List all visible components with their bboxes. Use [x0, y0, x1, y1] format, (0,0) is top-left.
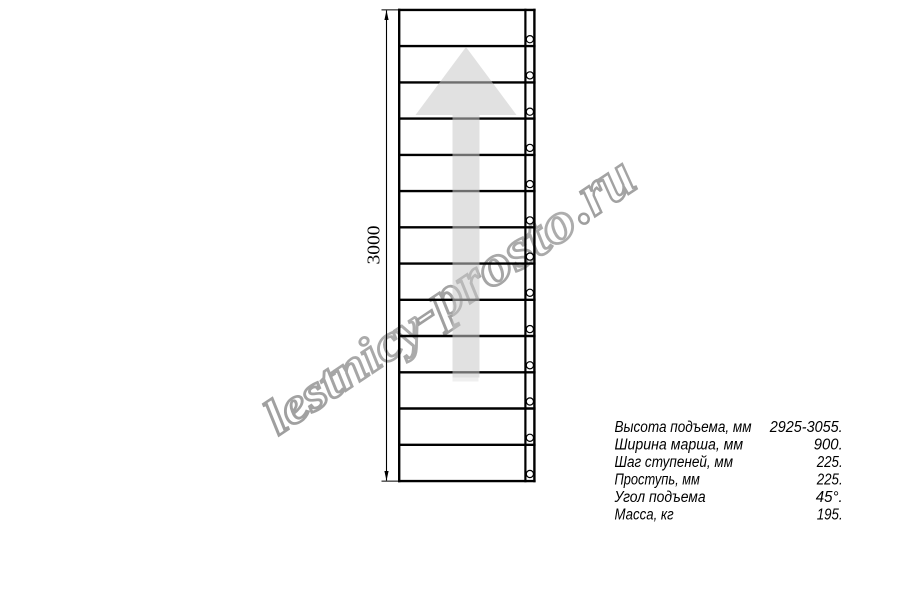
svg-text:Масса, кг: Масса, кг [615, 507, 674, 524]
svg-text:Угол подъема: Угол подъема [614, 489, 706, 506]
svg-text:225.: 225. [816, 472, 843, 489]
svg-text:Проступь, мм: Проступь, мм [615, 472, 701, 489]
svg-text:3000: 3000 [364, 226, 384, 265]
svg-text:225.: 225. [816, 454, 843, 471]
svg-text:900.: 900. [814, 437, 843, 454]
svg-text:195.: 195. [817, 507, 843, 524]
svg-text:Ширина марша, мм: Ширина марша, мм [615, 437, 744, 454]
svg-text:Высота подъема, мм: Высота подъема, мм [615, 419, 752, 436]
svg-text:2925-3055.: 2925-3055. [769, 419, 843, 436]
svg-text:Шаг ступеней, мм: Шаг ступеней, мм [615, 454, 734, 471]
svg-text:45°.: 45°. [816, 489, 843, 506]
